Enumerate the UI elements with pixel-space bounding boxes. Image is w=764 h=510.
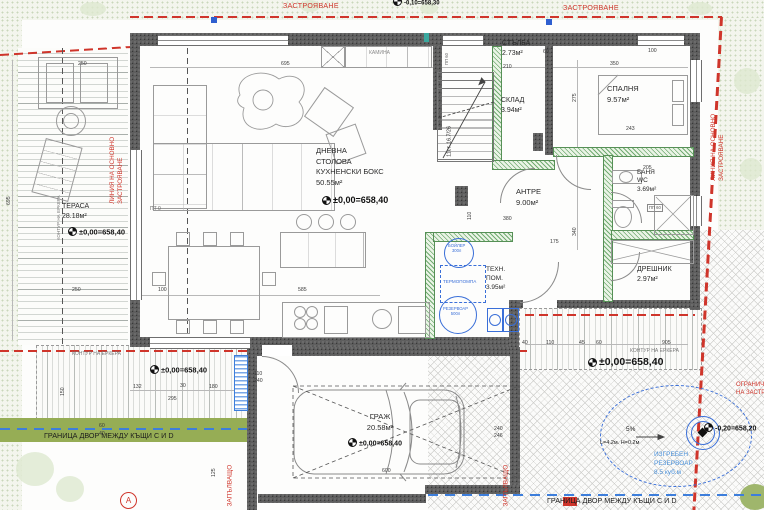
cooktop-burner: [306, 318, 318, 330]
level-terrace: ±0,00=658,40: [68, 227, 125, 238]
wall-bedroom-west: [545, 46, 553, 155]
dimension-label: 100: [158, 287, 167, 293]
dining-chair: [230, 232, 244, 246]
drain-grate: [234, 355, 248, 411]
dining-chair: [262, 272, 276, 286]
rug-circle: [253, 90, 273, 110]
wc-bowl: [614, 206, 632, 228]
erker-contour-label-left: КОНТУР НА ЕРКЕРА: [56, 190, 62, 240]
room-label-terrace: ТЕРАСА 28.18м²: [62, 202, 89, 222]
plant-blob: [688, 2, 712, 15]
shower: [654, 195, 694, 235]
opening-garage-house: [262, 345, 292, 356]
boiler-label: БОЙЛЕР 300л: [448, 243, 465, 253]
heat-pump-label: ТЕРМОПОМПА: [443, 279, 476, 285]
porch-left: [36, 345, 249, 420]
level-porch-right: ±0,00=658,40: [588, 355, 663, 370]
plant-blob: [56, 476, 84, 502]
level-garage: ±0,00=658,40: [348, 438, 402, 449]
erker-contour-label-bl: КОНТУР НА ЕРКЕРА: [72, 351, 121, 358]
room-label-tehn: ТЕХН. ПОМ. 3.95м²: [486, 266, 505, 292]
osnovno-line-label-left: ЛИНИЯ НА ОСНОВНО ЗАСТРОЯВАНЕ: [109, 112, 125, 204]
ramp-size-label: L=4.2м. H=0.2м: [600, 440, 639, 448]
downpipe-marker: [546, 19, 552, 25]
stairs-count-label: 11ст. 16.7/26: [446, 107, 453, 157]
kitchen-sink: [372, 309, 392, 329]
dimension-label: 600: [382, 468, 391, 474]
dim-line: [525, 344, 688, 345]
dim-line: [12, 60, 13, 340]
dimension-label: 100: [648, 48, 657, 54]
room-label-bedroom: СПАЛНЯ 9.57м²: [607, 84, 639, 105]
property-line-blue-left: [0, 428, 247, 430]
plant-blob: [16, 452, 54, 486]
oven: [324, 306, 348, 334]
cooktop-burner: [306, 306, 318, 318]
dimension-label: 380: [503, 216, 512, 222]
garage-door-band: [258, 494, 426, 503]
window-bedroom-north: [638, 35, 684, 46]
bar-stool: [296, 214, 312, 230]
column: [455, 186, 468, 206]
room-label-sklad: СКЛАД 3.94м²: [501, 96, 524, 116]
ogranichenie-label: ОГРАНИЧ. НА ЗАСТР.: [736, 382, 764, 398]
erker-contour-label-br: КОНТУР НА ЕРКЕРА: [630, 348, 679, 355]
zastroyavane-label-right: ЗАСТРОЯВАНЕ: [563, 4, 619, 14]
boundary-label-left: ГРАНИЦА ДВОР МЕЖДУ КЪЩИ С И D: [44, 431, 174, 441]
terrace-plant-inner: [63, 113, 79, 129]
dining-chair: [203, 320, 217, 334]
dining-chair: [176, 320, 190, 334]
kitchen-island: [280, 232, 366, 268]
septic-label: ИЗГРЕБЕН РЕЗЕРВОАР 8.5 куб.м: [654, 450, 693, 477]
washer-drum: [489, 314, 501, 326]
door-arc-bedroom: [556, 155, 591, 190]
pp60-label-b: ПП 60: [647, 204, 663, 212]
pt0-label: ПТ 0: [150, 206, 161, 213]
level-top-edge: -0,10=658,30: [393, 0, 440, 8]
dimension-label: 110: [467, 212, 473, 220]
partition-sklad-south: [492, 160, 555, 170]
level-living: ±0,00=658,40: [322, 194, 388, 207]
wardrobe: [611, 240, 694, 264]
fireplace-label: КАМИНА: [369, 50, 390, 57]
downpipe-marker: [211, 17, 217, 23]
plant-blob-corner: [740, 484, 764, 510]
room-label-antre: АНТРЕ 9.00м²: [516, 187, 541, 208]
osnovno-line-label-right: ЛИНИЯ НА ОСНОВНО ЗАСТРОЯВАНЕ: [710, 89, 726, 181]
door-arc-entrance: [520, 262, 559, 303]
level-porch-left: ±0,00=658,40: [150, 365, 207, 376]
wall-garage-right: [510, 347, 520, 490]
washbasin-bowl: [619, 171, 633, 183]
fireplace: [321, 46, 345, 68]
bar-stool: [340, 214, 356, 230]
dining-chair: [230, 320, 244, 334]
dimension-label: 585: [298, 287, 307, 293]
room-label-living: ДНЕВНА СТОЛОВА КУХНЕНСКИ БОКС 50.55м²: [316, 146, 384, 188]
washer-drum: [505, 314, 517, 326]
sofa: [153, 143, 335, 211]
zapalvashto-label-right: ЗАПЪЛВАЩО: [501, 447, 510, 507]
plant-blob: [80, 2, 106, 16]
axis-bubble: А: [120, 492, 137, 509]
dimension-label: 175: [550, 239, 559, 245]
window-living-west: [130, 150, 142, 300]
room-label-dreshnik: ДРЕШНИК 2.97м²: [637, 265, 672, 285]
dimension-label: 125: [211, 468, 217, 477]
terrace-table: [46, 63, 74, 103]
window-bedroom-east: [690, 60, 702, 102]
floor-plan: А ТЕРАСА: [0, 0, 764, 510]
pillow: [672, 80, 684, 102]
bar-stool: [318, 214, 334, 230]
building-line-top: [130, 16, 722, 18]
room-label-garage: ГРАЖ 20.58м²: [345, 412, 415, 433]
dining-chair: [152, 272, 166, 286]
door-living-south: [150, 337, 250, 349]
building-line-porch: [525, 314, 695, 316]
column: [533, 133, 543, 151]
zapalvashto-label-left: ЗАПЪЛВАЩО: [225, 447, 234, 507]
boundary-label-right: ГРАНИЦА ДВОР МЕЖДУ КЪЩИ С И D: [547, 496, 677, 506]
room-label-stairs: СТЪЛБА 2.73м²: [502, 39, 530, 59]
dining-chair: [203, 232, 217, 246]
tank-label: РЕЗЕРВОАР 500л: [443, 306, 468, 316]
plant-blob: [740, 158, 762, 180]
dining-chair: [176, 232, 190, 246]
zastroyavane-label-left: ЗАСТРОЯВАНЕ: [283, 2, 339, 12]
plant-blob: [734, 68, 760, 94]
dishwasher: [398, 306, 426, 334]
level-yard: -0,20=658,20: [704, 423, 756, 434]
pp60-label-a: ПП 60: [444, 45, 450, 65]
rug: [238, 73, 305, 129]
cooktop-burner: [294, 318, 306, 330]
terrace-table: [80, 63, 108, 103]
window-living-north: [158, 35, 288, 46]
dim-line: [130, 390, 247, 391]
pillow: [672, 104, 684, 126]
downpipe-marker: [424, 33, 429, 42]
partition-tehn-north: [433, 232, 513, 242]
cooktop-burner: [294, 306, 306, 318]
ramp-slope-label: 5%: [626, 425, 635, 434]
room-label-bath: БАНЯ WC 3.69м²: [637, 169, 656, 194]
door-arc-garage: [262, 356, 299, 393]
wall-garage-left: [247, 347, 257, 510]
dining-table: [168, 246, 260, 320]
